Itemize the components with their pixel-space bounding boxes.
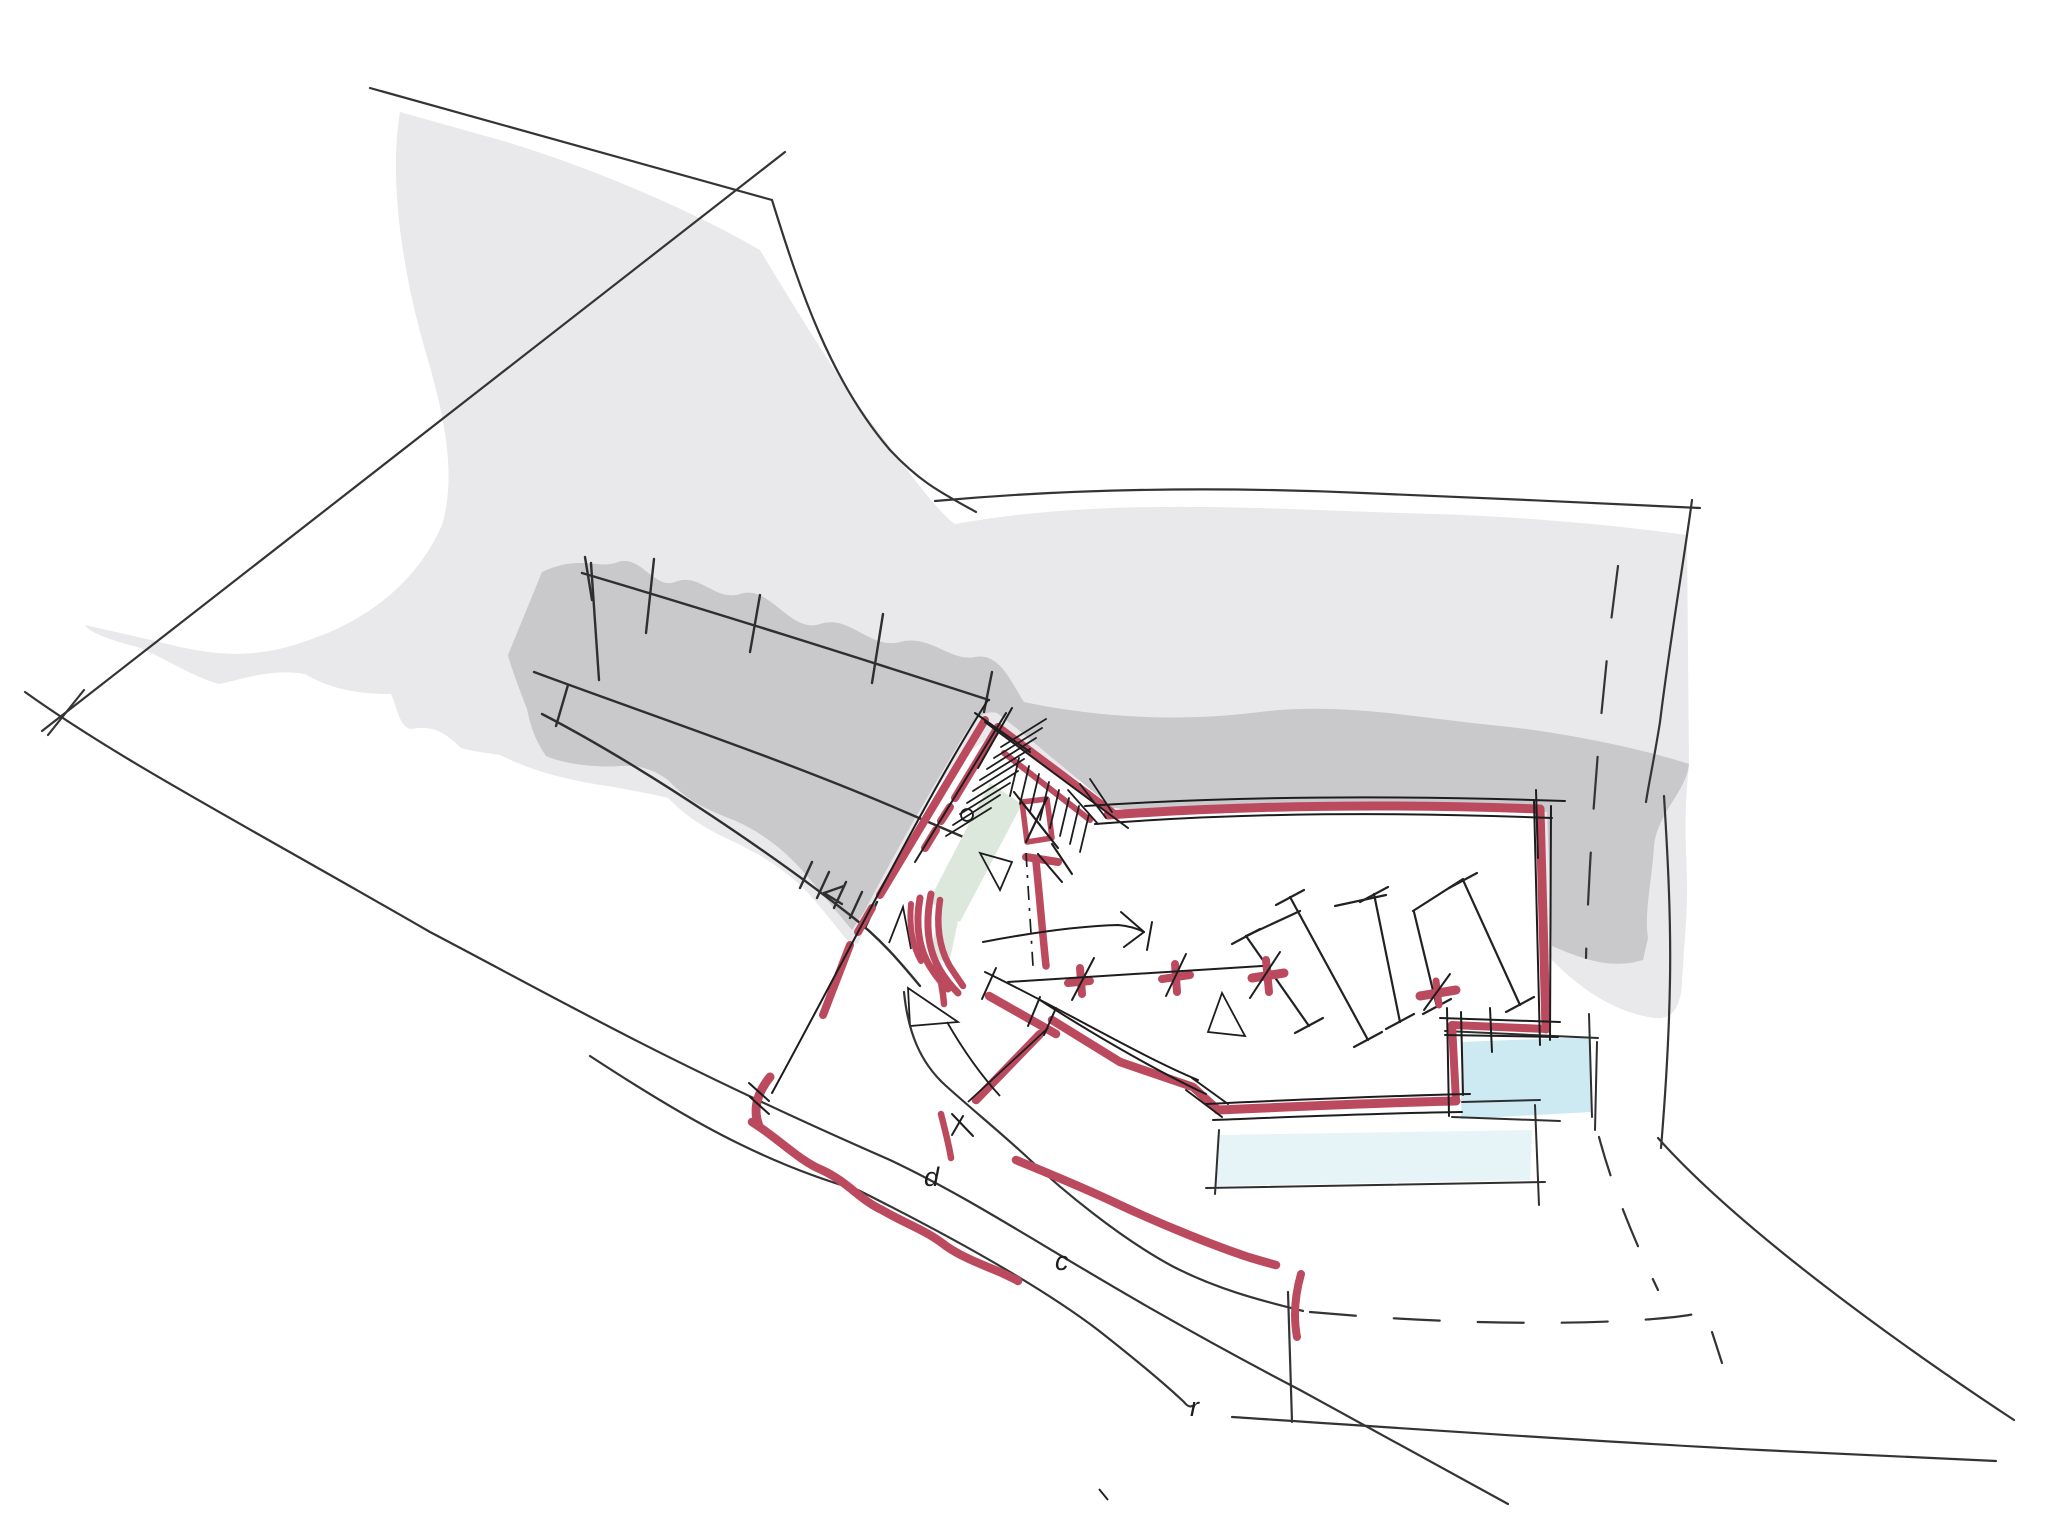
- svg-text:d: d: [924, 1162, 940, 1192]
- svg-text:c: c: [1055, 1246, 1069, 1276]
- svg-text:r: r: [1190, 1392, 1200, 1422]
